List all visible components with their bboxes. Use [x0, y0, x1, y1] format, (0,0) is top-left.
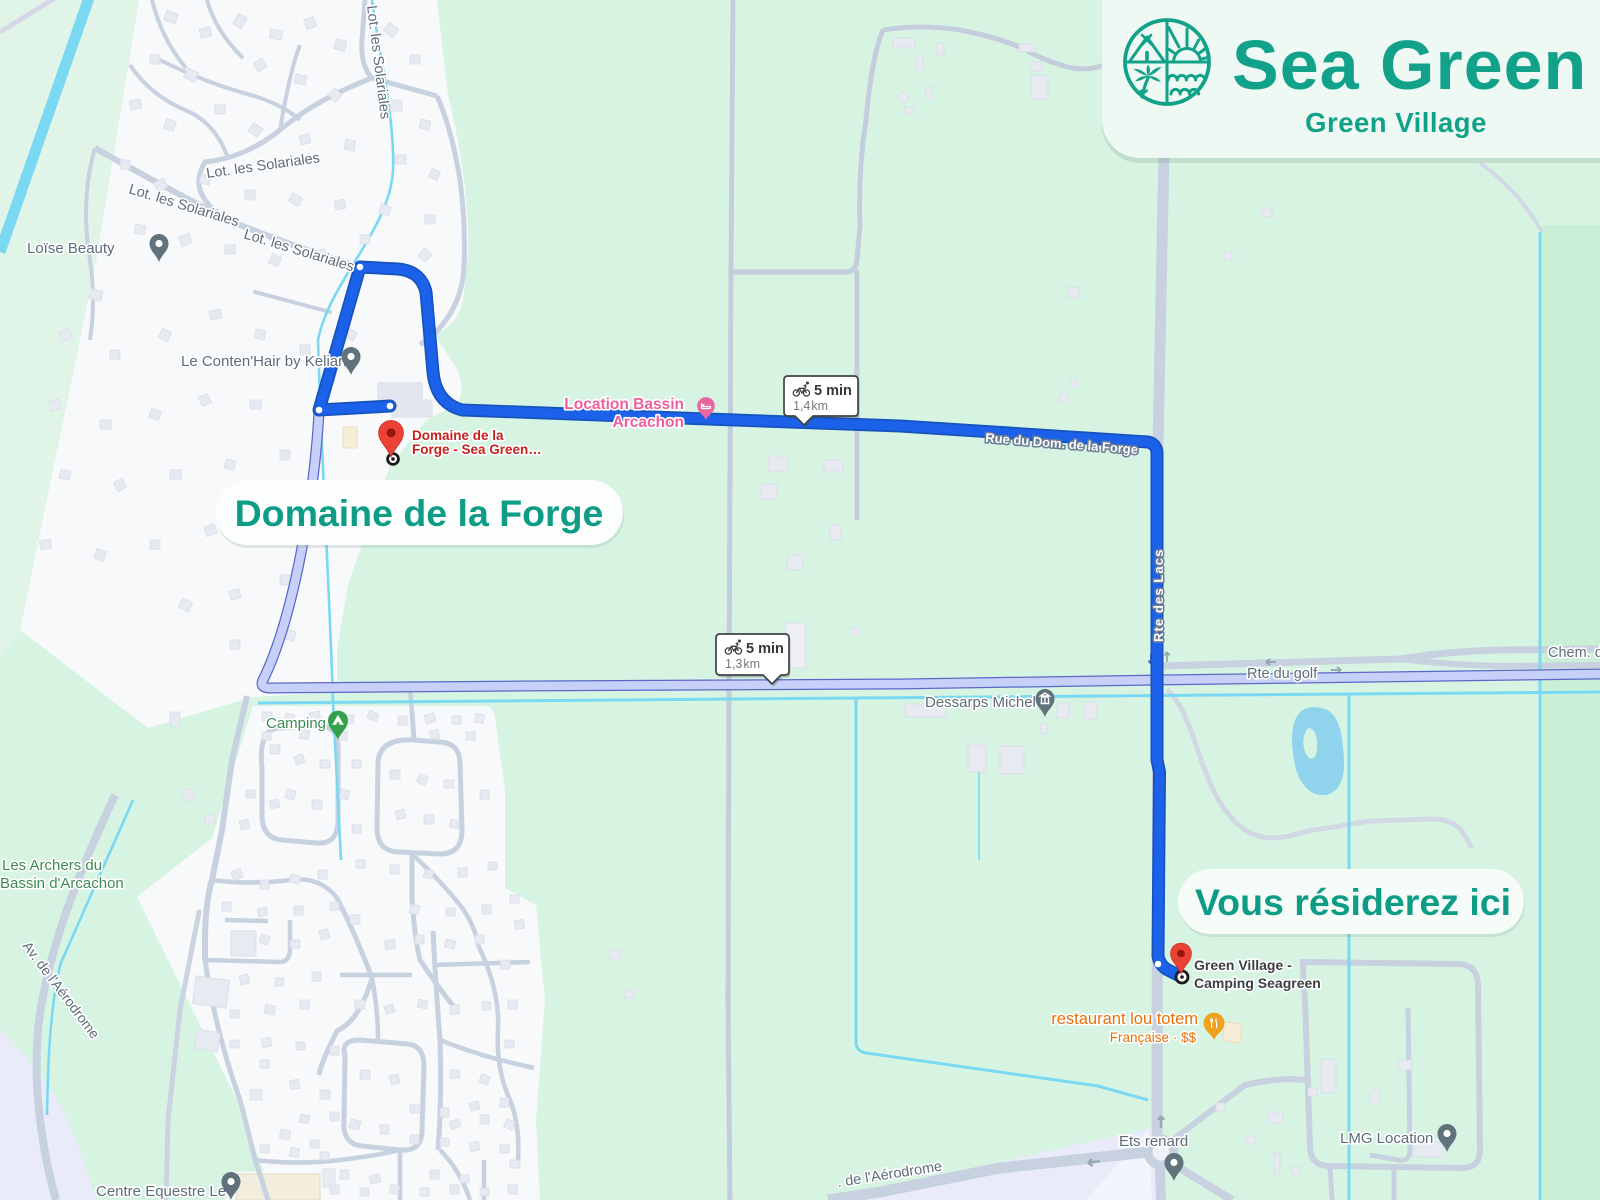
svg-text:Arcachon: Arcachon [613, 414, 685, 431]
svg-text:LMG Location: LMG Location [1340, 1130, 1433, 1147]
svg-text:Centre Equestre Le: Centre Equestre Le [96, 1183, 226, 1200]
svg-text:Loïse Beauty: Loïse Beauty [27, 240, 115, 257]
svg-text:Green Village -: Green Village - [1194, 957, 1292, 973]
svg-text:Forge - Sea Green…: Forge - Sea Green… [412, 442, 542, 457]
svg-text:Française · $$: Française · $$ [1110, 1030, 1197, 1045]
svg-text:Chem. d: Chem. d [1548, 645, 1600, 661]
svg-text:Bassin d'Arcachon: Bassin d'Arcachon [0, 875, 124, 892]
svg-text:5 min: 5 min [814, 383, 852, 399]
svg-text:Sea Green: Sea Green [1232, 26, 1587, 104]
svg-text:Vous résiderez ici: Vous résiderez ici [1195, 881, 1511, 923]
svg-text:restaurant lou totem: restaurant lou totem [1051, 1010, 1198, 1028]
svg-text:Green Village: Green Village [1305, 107, 1487, 138]
svg-text:5 min: 5 min [746, 641, 784, 657]
svg-text:Les Archers du: Les Archers du [2, 857, 102, 874]
svg-text:Camping: Camping [266, 715, 326, 732]
svg-text:Ets renard: Ets renard [1119, 1133, 1188, 1150]
svg-text:Domaine de la Forge: Domaine de la Forge [235, 492, 604, 534]
svg-text:Camping Seagreen: Camping Seagreen [1194, 975, 1321, 991]
svg-text:1,4 km: 1,4 km [793, 399, 828, 413]
svg-text:Domaine de la: Domaine de la [412, 428, 504, 443]
svg-text:Rte du golf: Rte du golf [1247, 666, 1318, 682]
svg-text:1,3 km: 1,3 km [725, 657, 760, 671]
svg-text:Location Bassin: Location Bassin [564, 396, 684, 413]
svg-text:Rte des Lacs: Rte des Lacs [1151, 549, 1166, 642]
svg-text:Le Conten'Hair by Kelian: Le Conten'Hair by Kelian [181, 353, 346, 370]
svg-text:Dessarps Michel: Dessarps Michel [925, 694, 1036, 711]
